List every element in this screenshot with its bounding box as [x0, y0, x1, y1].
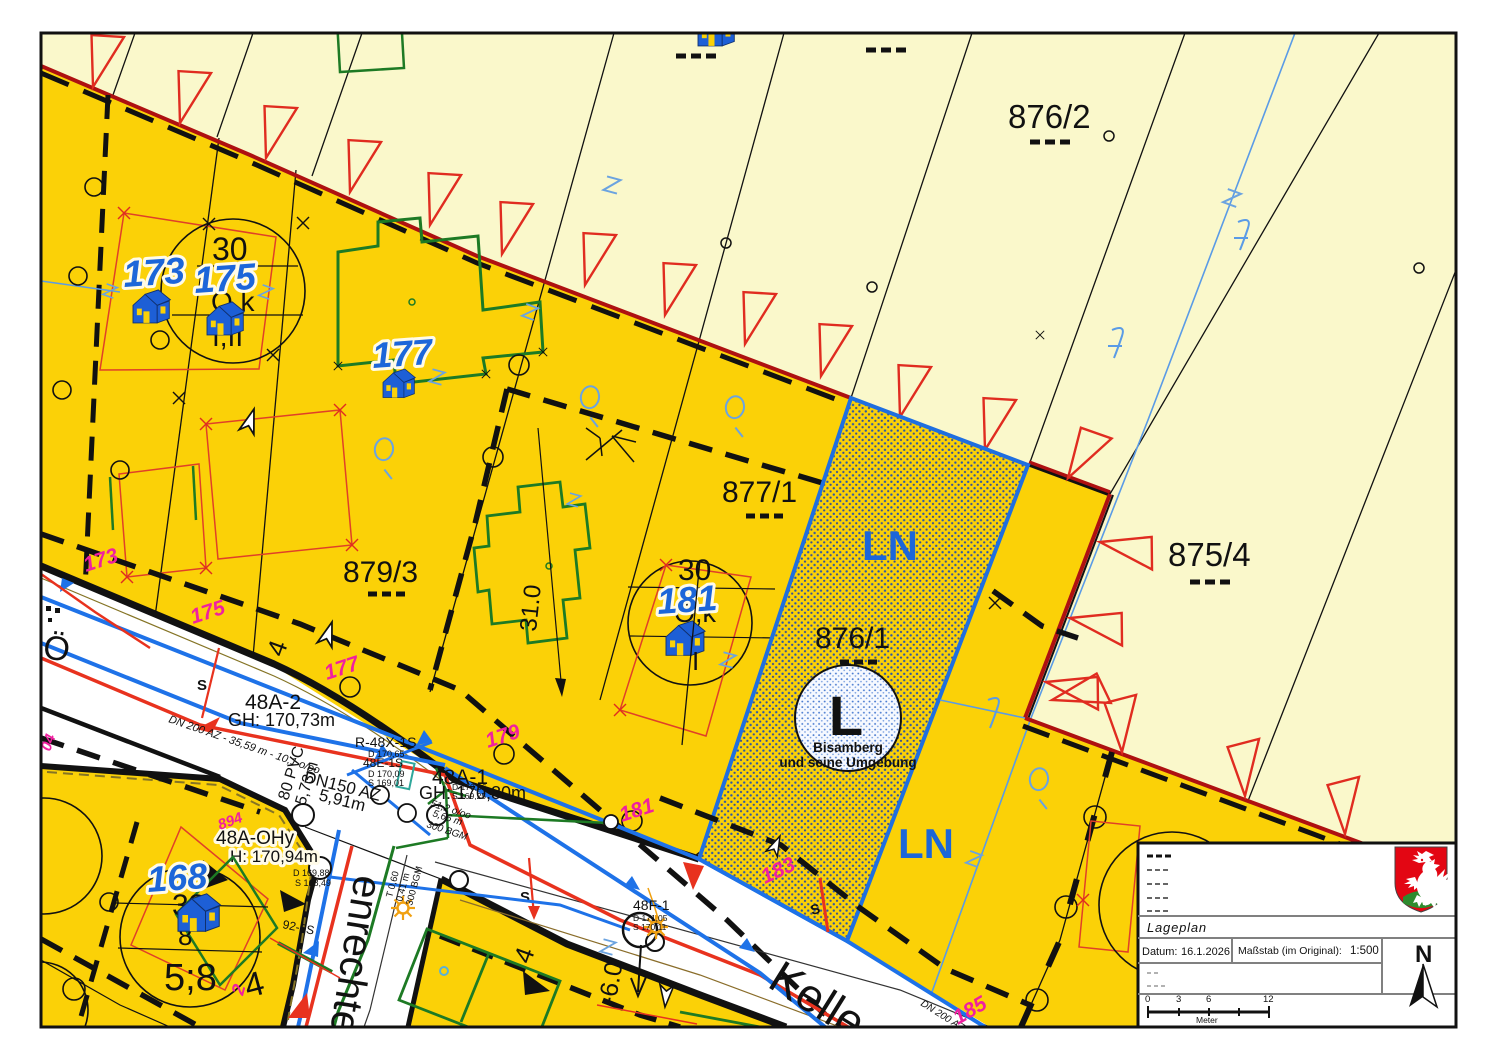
svg-text:S: S [197, 677, 207, 694]
svg-text:48E-1S: 48E-1S [363, 756, 403, 770]
svg-text:I: I [692, 646, 699, 676]
svg-text:168: 168 [146, 855, 209, 900]
svg-text:GH: 170,73m: GH: 170,73m [228, 710, 335, 730]
svg-text:3: 3 [1176, 994, 1181, 1005]
svg-text:177: 177 [371, 331, 436, 376]
svg-text:S 169,25: S 169,25 [452, 791, 486, 801]
svg-text:175: 175 [193, 256, 259, 301]
svg-text:1:500: 1:500 [1350, 945, 1379, 957]
svg-text:31.0: 31.0 [515, 583, 547, 632]
svg-text:Datum:: Datum: [1142, 946, 1177, 958]
svg-text:LN: LN [862, 522, 918, 569]
svg-text:LN: LN [898, 820, 954, 867]
svg-text:876/1: 876/1 [815, 622, 890, 655]
svg-text:0: 0 [1145, 994, 1150, 1005]
svg-text:876/2: 876/2 [1008, 98, 1091, 135]
svg-text:173: 173 [122, 250, 187, 295]
svg-text:879/3: 879/3 [343, 556, 418, 589]
svg-text:Lageplan: Lageplan [1147, 920, 1207, 935]
svg-text:Ö: Ö [41, 628, 72, 669]
svg-text:Bisamberg: Bisamberg [813, 740, 883, 755]
svg-text:und seine Umgebung: und seine Umgebung [779, 755, 916, 770]
svg-text:12: 12 [1263, 994, 1274, 1005]
svg-text:H: 170,94m: H: 170,94m [230, 847, 318, 866]
svg-text:S: S [520, 889, 530, 906]
svg-text:875/4: 875/4 [1168, 536, 1251, 573]
svg-text:S 170,11: S 170,11 [633, 922, 667, 932]
svg-text:Meter: Meter [1196, 1015, 1218, 1025]
svg-text:Maßstab (im Original):: Maßstab (im Original): [1238, 945, 1342, 957]
svg-text:181: 181 [656, 577, 719, 622]
svg-text:R-48X-1S: R-48X-1S [355, 734, 416, 750]
svg-text:6: 6 [1206, 994, 1211, 1005]
svg-text:5;8: 5;8 [164, 957, 217, 999]
svg-text:877/1: 877/1 [722, 476, 797, 509]
svg-text:L: L [829, 684, 863, 747]
svg-text:S 168,49: S 168,49 [295, 878, 331, 888]
svg-text:48F-1: 48F-1 [633, 897, 670, 913]
svg-text:D 169,88: D 169,88 [293, 868, 330, 878]
svg-text:16.1.2026: 16.1.2026 [1181, 946, 1230, 958]
